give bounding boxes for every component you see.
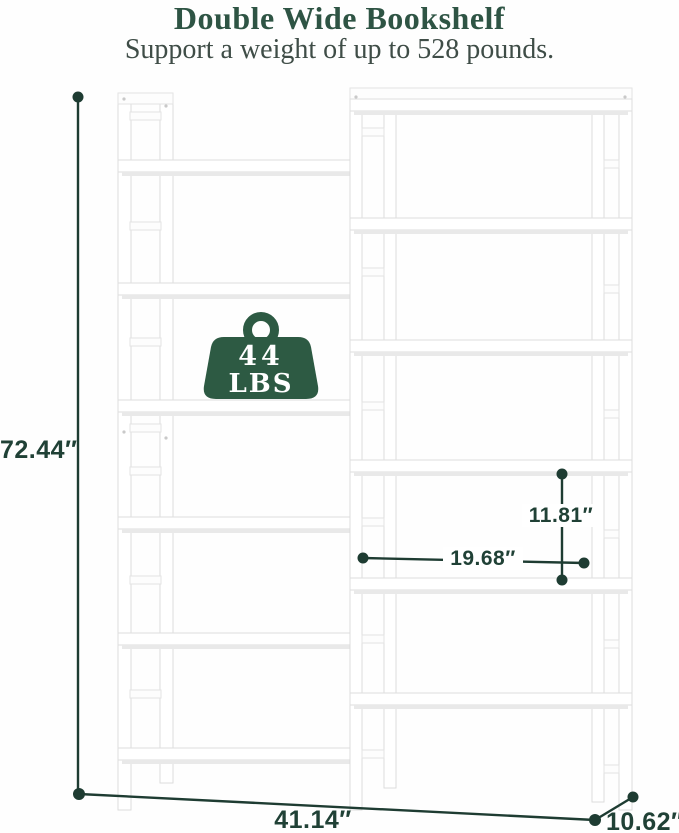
right-tower <box>350 88 632 810</box>
inner-width-label: 19.68″ <box>443 547 523 570</box>
dimension-inner-height-line <box>557 469 568 586</box>
weight-badge: 44 LBS <box>204 342 318 398</box>
overall-width-label: 41.14″ <box>251 806 375 833</box>
weight-badge-value: 44 <box>204 342 318 371</box>
weight-badge-unit: LBS <box>204 371 318 398</box>
left-tower <box>118 93 362 810</box>
bookshelf-diagram <box>0 0 679 833</box>
inner-height-label: 11.81″ <box>522 504 600 527</box>
depth-label: 10.62″ <box>606 808 679 833</box>
overall-height-label: 72.44″ <box>0 436 72 464</box>
product-dimension-image: Double Wide Bookshelf Support a weight o… <box>0 0 679 833</box>
